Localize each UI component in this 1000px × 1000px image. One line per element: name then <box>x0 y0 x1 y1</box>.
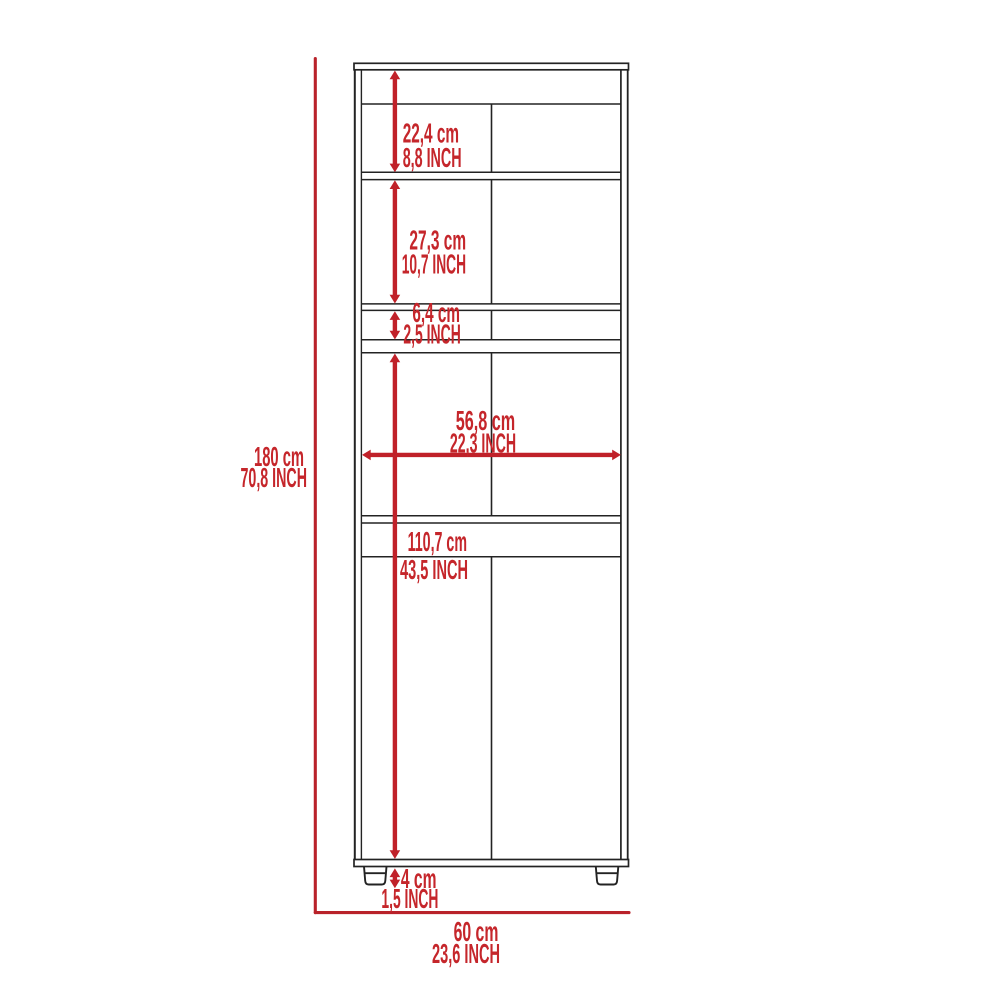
svg-text:10,7 INCH: 10,7 INCH <box>402 249 466 280</box>
svg-text:43,5 INCH: 43,5 INCH <box>400 554 468 585</box>
svg-text:8,8 INCH: 8,8 INCH <box>403 142 462 173</box>
svg-text:23,6 INCH: 23,6 INCH <box>432 938 500 969</box>
svg-text:1,5 INCH: 1,5 INCH <box>381 883 438 914</box>
svg-text:22,3 INCH: 22,3 INCH <box>450 428 516 459</box>
svg-text:70,8 INCH: 70,8 INCH <box>241 462 308 493</box>
svg-text:2,5 INCH: 2,5 INCH <box>403 319 460 350</box>
svg-text:110,7 cm: 110,7 cm <box>408 526 467 557</box>
